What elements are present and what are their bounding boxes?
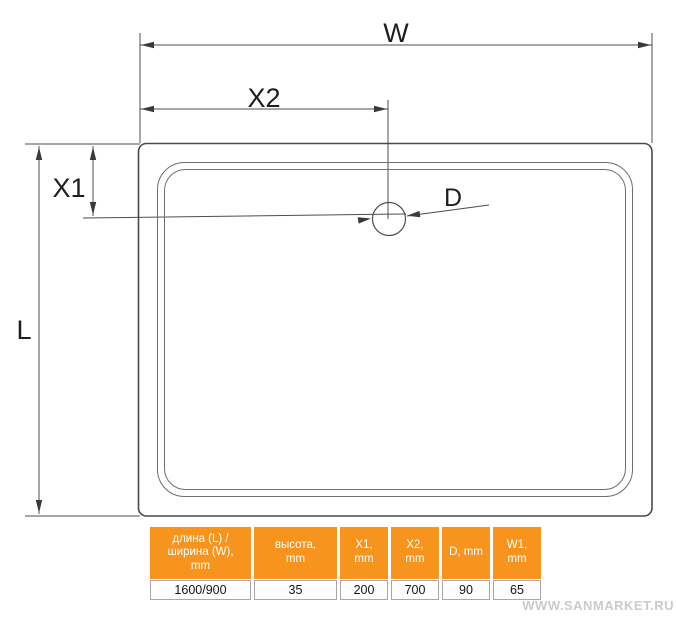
arrow-up-icon [90, 147, 96, 160]
w-dimension-label: W [383, 18, 409, 48]
drain-center-horizontal-line [83, 214, 406, 218]
header-length-width: длина (L) / ширина (W), mm [150, 527, 251, 579]
arrow-right-icon [638, 42, 651, 48]
header-x2: X2, mm [391, 527, 439, 579]
x1-dimension-label: X1 [52, 173, 85, 203]
dimension-spec-table: длина (L) / ширина (W), mm высота, mm X1… [150, 527, 550, 600]
arrow-right-icon [358, 215, 372, 223]
value-x1: 200 [340, 580, 388, 600]
header-x1: X1, mm [340, 527, 388, 579]
shower-tray-dimension-diagram: W X2 X1 L D длина (L) / ширина (W), mm в… [0, 0, 676, 622]
tray-outer-edge [139, 144, 653, 517]
tray-rim-inner-line [165, 170, 626, 490]
arrow-left-icon [141, 42, 154, 48]
arrow-right-icon [374, 106, 387, 112]
arrow-down-icon [90, 202, 96, 215]
d-dimension-label: D [444, 184, 462, 212]
arrow-left-icon [141, 106, 154, 112]
tray-rim-outer-line [158, 163, 633, 497]
site-watermark: WWW.SANMARKET.RU [522, 598, 674, 613]
table-value-row: 1600/900 35 200 700 90 65 [150, 579, 550, 600]
header-w1: W1, mm [493, 527, 541, 579]
arrow-up-icon [36, 147, 42, 160]
value-d: 90 [442, 580, 490, 600]
value-height: 35 [254, 580, 337, 600]
dimension-lines [25, 33, 652, 516]
arrow-left-icon [407, 211, 421, 219]
header-d: D, mm [442, 527, 490, 579]
arrow-down-icon [36, 500, 42, 513]
arrowheads [36, 42, 651, 513]
value-w1: 65 [493, 580, 541, 600]
x2-dimension-label: X2 [247, 83, 280, 113]
table-header-row: длина (L) / ширина (W), mm высота, mm X1… [150, 527, 550, 579]
l-dimension-label: L [16, 315, 31, 345]
drain-circle [373, 203, 406, 236]
value-length-width: 1600/900 [150, 580, 251, 600]
value-x2: 700 [391, 580, 439, 600]
header-height: высота, mm [254, 527, 337, 579]
